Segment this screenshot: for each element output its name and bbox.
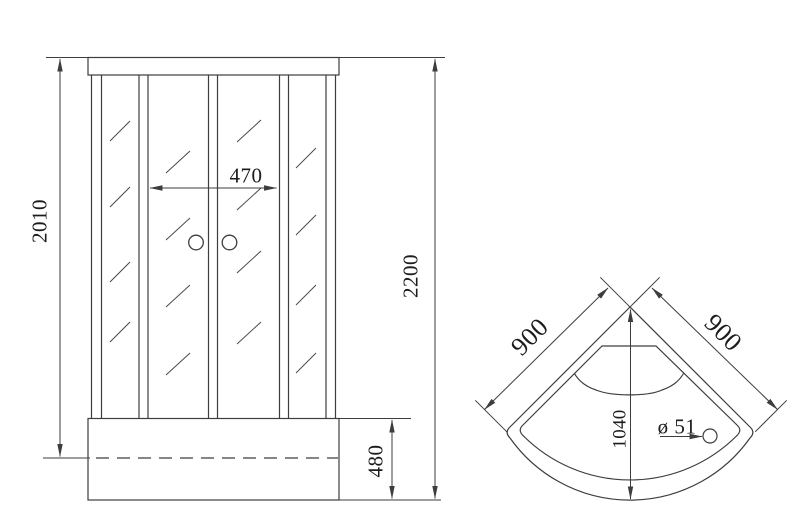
glass-hatch <box>296 353 316 373</box>
shower-tray-base <box>88 419 339 501</box>
glass-hatch <box>237 251 261 273</box>
glass-hatches <box>110 120 316 375</box>
extension-line <box>475 400 507 432</box>
glass-hatch <box>237 322 261 344</box>
dim-label-door-width: 470 <box>230 166 263 187</box>
extension-lines-front <box>43 58 445 501</box>
dim-label-glass-height: 2010 <box>30 199 51 243</box>
front-view <box>43 58 445 501</box>
glass-hatch <box>110 187 130 207</box>
door-knob <box>222 235 237 250</box>
glass-hatch <box>110 121 130 141</box>
frame-posts <box>92 75 336 419</box>
glass-hatch <box>166 218 190 240</box>
extension-line <box>600 277 632 309</box>
top-cap <box>88 58 339 76</box>
top-view <box>475 277 786 500</box>
door-knob <box>189 235 204 250</box>
glass-hatch <box>166 151 190 173</box>
glass-hatch <box>110 262 130 282</box>
dim-label-tray-height: 480 <box>366 445 387 478</box>
glass-hatch <box>296 215 316 235</box>
drain-hole <box>703 429 717 443</box>
glass-hatch <box>237 120 261 142</box>
glass-hatch <box>237 188 261 210</box>
dim-label-drain-diameter: ø 51 <box>658 417 697 438</box>
glass-hatch <box>296 148 316 168</box>
glass-hatch <box>166 285 190 307</box>
glass-hatch <box>166 353 190 375</box>
dimension-lines-front <box>60 59 435 499</box>
dim-label-total-height: 2200 <box>401 254 422 298</box>
glass-hatch <box>110 322 130 342</box>
technical-drawing-page: 2010 470 2200 480 900 900 1040 ø 51 <box>0 0 800 531</box>
seat-edge-curve <box>575 374 684 395</box>
dim-label-front-diagonal: 1040 <box>611 409 630 448</box>
extension-line <box>755 400 787 432</box>
extension-line <box>628 277 660 309</box>
glass-hatch <box>296 285 316 305</box>
